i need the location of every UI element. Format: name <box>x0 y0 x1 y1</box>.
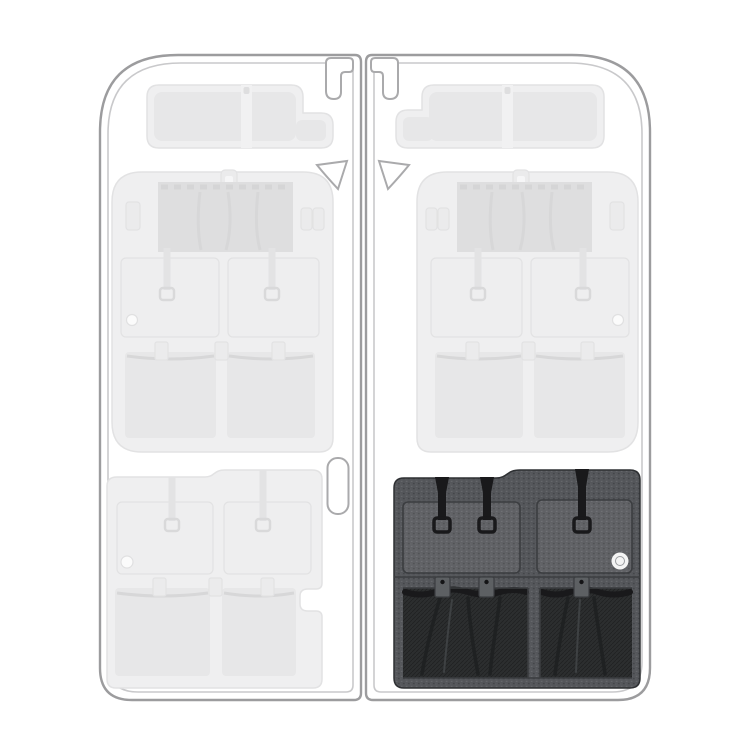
left-bottom-door-organizer[interactable] <box>107 470 322 688</box>
brand-badge-circle <box>612 553 629 570</box>
strap-1-webbing <box>438 486 446 520</box>
strap-2-webbing <box>483 486 491 520</box>
snap-tab-3-stud <box>579 580 583 584</box>
left-middle-snap-tab-3 <box>272 342 285 360</box>
left-middle-snap-tab-1 <box>155 342 168 360</box>
right-middle-brand-badge <box>613 315 624 326</box>
mesh-pocket-right <box>540 588 632 678</box>
left-middle-strap-1 <box>164 248 171 290</box>
right-top-shelf-organizer[interactable] <box>396 85 604 148</box>
right-middle-snap-tab-2 <box>522 342 535 360</box>
right-middle-strap-2 <box>580 248 587 290</box>
left-bottom-mesh-pocket-right <box>222 588 296 676</box>
right-middle-snap-tab-3 <box>581 342 594 360</box>
left-bottom-mesh-pocket-left <box>115 588 210 676</box>
left-top-shelf-mesh <box>154 92 296 141</box>
left-middle-mesh-pocket-left <box>125 352 216 438</box>
left-middle-door-organizer[interactable] <box>112 170 333 452</box>
left-bottom-brand-badge <box>121 556 133 568</box>
strap-3-webbing <box>578 480 586 520</box>
right-middle-strap-1 <box>475 248 482 290</box>
snap-tab-1-stud <box>440 580 444 584</box>
right-top-shelf-mesh-ext <box>403 117 433 141</box>
left-middle-side-tab-left <box>126 202 140 230</box>
right-middle-mesh-pocket-right <box>534 352 625 438</box>
left-middle-side-tab-right-1 <box>301 208 312 230</box>
left-middle-snap-tab-2 <box>215 342 228 360</box>
right-top-shelf-divider <box>502 85 513 148</box>
left-bottom-strap-1 <box>169 477 176 521</box>
right-middle-snap-tab-1 <box>466 342 479 360</box>
right-middle-door-organizer[interactable] <box>417 170 638 452</box>
left-door-handle-recess <box>328 458 349 514</box>
mesh-pocket-right-net <box>540 588 632 678</box>
right-middle-mesh-pocket-left <box>435 352 523 438</box>
left-bottom-flap-pocket-right <box>224 502 311 574</box>
flap-pocket-left <box>403 502 520 573</box>
left-bottom-strap-2 <box>260 470 267 521</box>
mesh-pocket-left <box>403 588 528 678</box>
left-middle-strap-2 <box>269 248 276 290</box>
left-bottom-snap-tab-3 <box>261 578 274 596</box>
left-top-shelf-divider <box>241 85 252 148</box>
left-middle-mesh-pocket-right <box>227 352 315 438</box>
left-top-shelf-mesh-ext <box>296 120 326 141</box>
right-top-shelf-divider-snap <box>505 87 511 94</box>
organizer-placement-diagram <box>0 0 750 750</box>
left-top-shelf-divider-snap <box>244 87 250 94</box>
left-bottom-snap-tab-2 <box>209 578 222 596</box>
left-bottom-snap-tab-1 <box>153 578 166 596</box>
right-middle-side-tab-left-1 <box>426 208 437 230</box>
mesh-pocket-left-net <box>403 588 528 678</box>
highlighted-bottom-door-organizer[interactable] <box>394 469 640 688</box>
flap-pocket-left-highlight <box>403 502 520 573</box>
snap-tab-3 <box>574 577 589 597</box>
snap-tab-2 <box>479 577 494 597</box>
right-middle-side-tab-left-2 <box>438 208 449 230</box>
left-middle-side-tab-right-2 <box>313 208 324 230</box>
snap-tab-2-stud <box>484 580 488 584</box>
right-middle-side-tab-right <box>610 202 624 230</box>
snap-tab-1 <box>435 577 450 597</box>
brand-badge <box>612 553 629 570</box>
left-middle-curtain-area <box>158 182 293 252</box>
left-middle-brand-badge <box>127 315 138 326</box>
